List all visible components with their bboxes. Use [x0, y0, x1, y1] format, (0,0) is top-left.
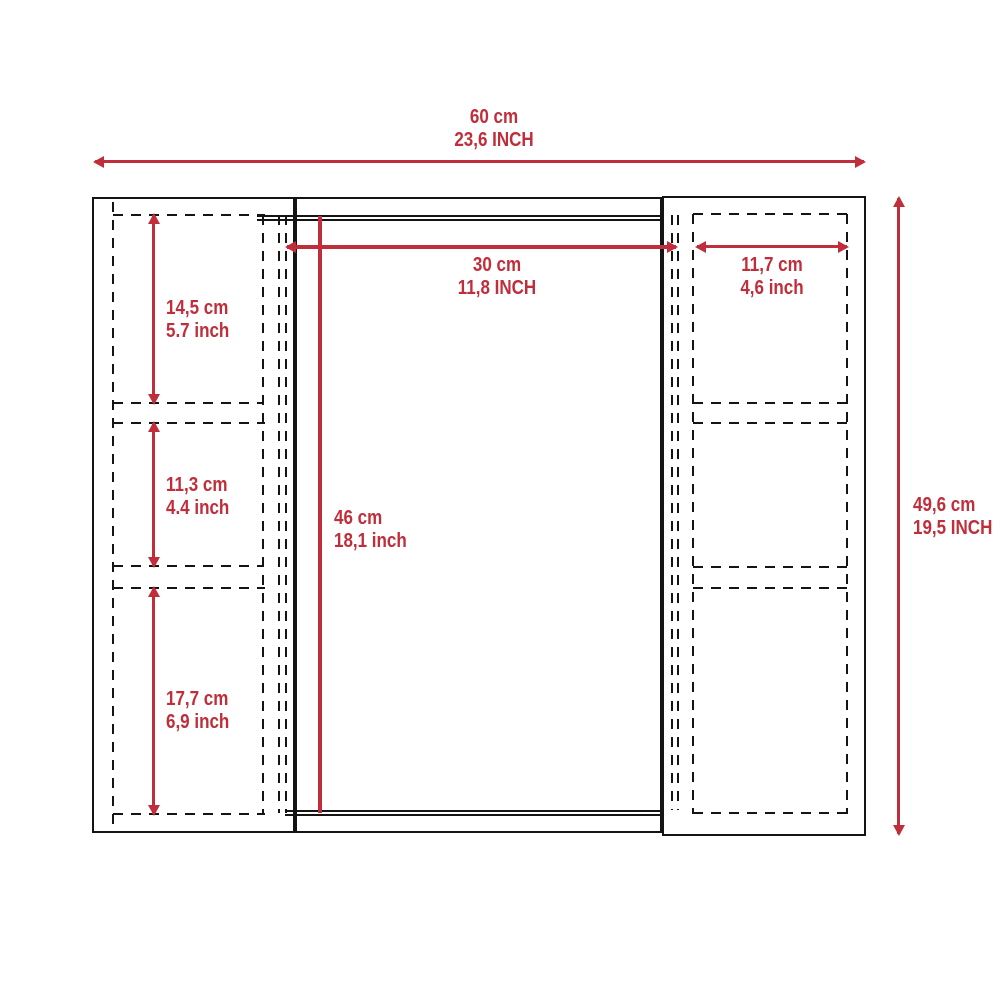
right-shelf-dashed-line [693, 587, 847, 589]
overall-height-arrow [897, 198, 900, 834]
door-width-arrow [287, 245, 676, 249]
overall-height-metric: 49,6 cm [913, 494, 992, 517]
left-shelf-1-label: 14,5 cm 5.7 inch [166, 297, 229, 343]
arrowhead-right-icon [838, 241, 849, 253]
arrowhead-down-icon [148, 805, 160, 816]
right-shelf-width-metric: 11,7 cm [687, 254, 857, 277]
door-width-label: 30 cm 11,8 INCH [412, 254, 582, 300]
right-shelf-width-arrow [697, 245, 847, 248]
right-door-overlap-dashed-line [677, 215, 679, 810]
left-shelf-dashed-line [113, 422, 265, 424]
left-shelf-3-imperial: 6,9 inch [166, 711, 229, 734]
left-door-dashed-left-edge [112, 202, 114, 826]
arrowhead-up-icon [148, 213, 160, 224]
left-shelf-1-metric: 14,5 cm [166, 297, 229, 320]
right-shelf-dashed-right-edge [846, 214, 848, 814]
arrowhead-down-icon [893, 825, 905, 836]
left-shelf-2-imperial: 4.4 inch [166, 497, 229, 520]
arrowhead-down-icon [148, 394, 160, 405]
arrowhead-left-icon [93, 156, 104, 168]
arrowhead-right-icon [855, 156, 866, 168]
door-width-imperial: 11,8 INCH [412, 277, 582, 300]
overall-width-imperial: 23,6 INCH [409, 129, 579, 152]
left-shelf-dashed-line [113, 402, 263, 404]
right-shelf-dashed-line [693, 566, 847, 568]
door-height-metric: 46 cm [334, 507, 407, 530]
left-shelf-3-label: 17,7 cm 6,9 inch [166, 688, 229, 734]
cabinet-dimension-diagram: 60 cm 23,6 INCH 49,6 cm 19,5 INCH 14,5 c… [0, 0, 1000, 1000]
overall-height-label: 49,6 cm 19,5 INCH [913, 494, 992, 540]
arrowhead-up-icon [893, 196, 905, 207]
right-shelf-dashed-line [693, 402, 847, 404]
door-bottom-inner-line [285, 810, 662, 812]
right-shelf-dashed-line [693, 422, 847, 424]
left-shelf-dashed-line [113, 587, 265, 589]
left-shelf-2-metric: 11,3 cm [166, 474, 229, 497]
door-height-label: 46 cm 18,1 inch [334, 507, 407, 553]
right-shelf-dashed-line [693, 213, 847, 215]
arrowhead-up-icon [148, 586, 160, 597]
left-shelf-dashed-line [113, 214, 265, 216]
overall-width-metric: 60 cm [409, 106, 579, 129]
left-shelf-dashed-line [113, 565, 263, 567]
arrowhead-right-icon [667, 241, 678, 253]
right-door-overlap-dashed-line [671, 215, 673, 810]
overall-height-imperial: 19,5 INCH [913, 517, 992, 540]
left-door-dashed-right-edge [262, 215, 264, 814]
right-shelf-width-label: 11,7 cm 4,6 inch [687, 254, 857, 300]
left-shelf-3-metric: 17,7 cm [166, 688, 229, 711]
overall-width-arrow [95, 160, 864, 163]
arrowhead-left-icon [285, 241, 296, 253]
arrowhead-left-icon [695, 241, 706, 253]
left-shelf-dashed-line [113, 813, 265, 815]
door-height-imperial: 18,1 inch [334, 530, 407, 553]
door-bottom-inner-line [285, 814, 662, 816]
overall-width-label: 60 cm 23,6 INCH [409, 106, 579, 152]
left-shelf-1-imperial: 5.7 inch [166, 320, 229, 343]
left-shelf-2-arrow [152, 423, 155, 566]
left-shelf-2-label: 11,3 cm 4.4 inch [166, 474, 229, 520]
left-door-overlap-dashed-line [278, 215, 280, 813]
left-door-overlap-dashed-line [285, 215, 287, 813]
door-width-metric: 30 cm [412, 254, 582, 277]
right-shelf-dashed-line [693, 812, 847, 814]
door-height-line [318, 216, 322, 813]
arrowhead-up-icon [148, 421, 160, 432]
right-shelf-width-imperial: 4,6 inch [687, 277, 857, 300]
left-shelf-3-arrow [152, 588, 155, 814]
arrowhead-down-icon [148, 557, 160, 568]
left-shelf-1-arrow [152, 215, 155, 403]
right-shelf-dashed-left-edge [692, 214, 694, 814]
